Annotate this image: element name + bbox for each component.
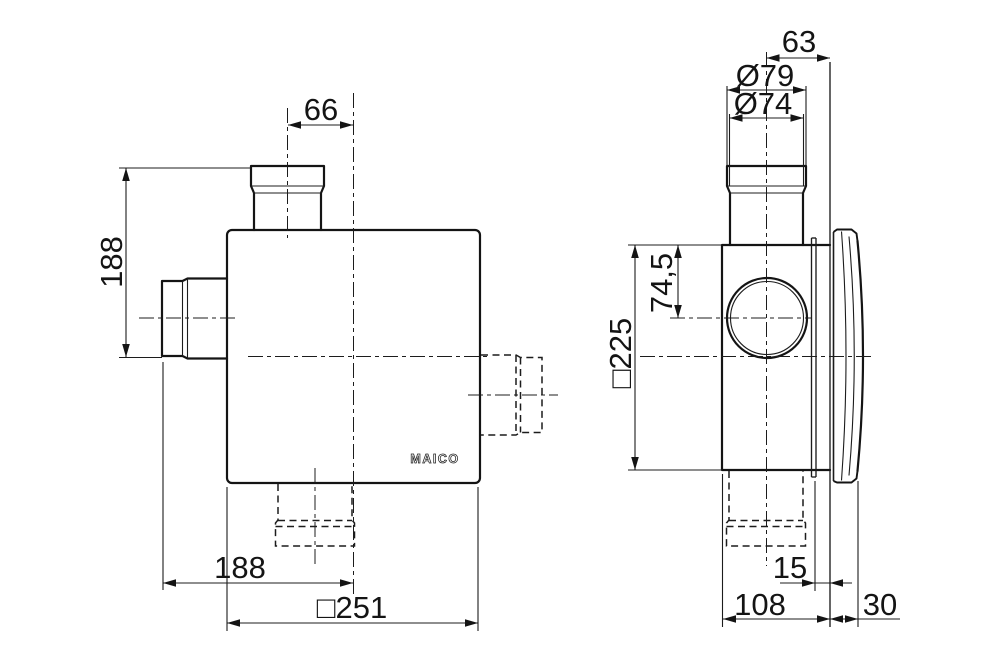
svg-text:188: 188 — [94, 236, 129, 288]
svg-text:Ø74: Ø74 — [734, 86, 793, 121]
svg-text:15: 15 — [773, 550, 807, 585]
brand-logo: MAICO — [410, 452, 459, 466]
svg-text:66: 66 — [304, 92, 338, 127]
side-bottom-duct-spigot-hidden — [727, 471, 806, 546]
dimension-cover-depth: 30 — [830, 587, 897, 623]
front-view: MAICO 66 188 188 — [94, 92, 558, 631]
technical-drawing-canvas: MAICO 66 188 188 — [0, 0, 1000, 662]
dimension-duct-center-from-top: 74,5 — [644, 245, 682, 318]
dimension-top-duct-offset: 66 — [288, 92, 353, 129]
dimension-width-to-center: 188 — [163, 362, 353, 590]
svg-text:74,5: 74,5 — [644, 253, 679, 313]
svg-text:188: 188 — [214, 550, 266, 585]
svg-text:□251: □251 — [317, 590, 387, 625]
side-front-flange — [812, 238, 817, 477]
svg-text:63: 63 — [782, 24, 816, 59]
svg-text:30: 30 — [863, 587, 897, 622]
dimension-flange-to-wall: 15 — [773, 481, 852, 591]
side-view: 63 Ø79 Ø74 74,5 — [603, 24, 900, 627]
fan-dimension-drawing: MAICO 66 188 188 — [0, 0, 1000, 662]
svg-text:108: 108 — [734, 587, 786, 622]
svg-text:□225: □225 — [603, 318, 638, 388]
dimension-duct-center-to-wall: 63 — [767, 24, 831, 62]
